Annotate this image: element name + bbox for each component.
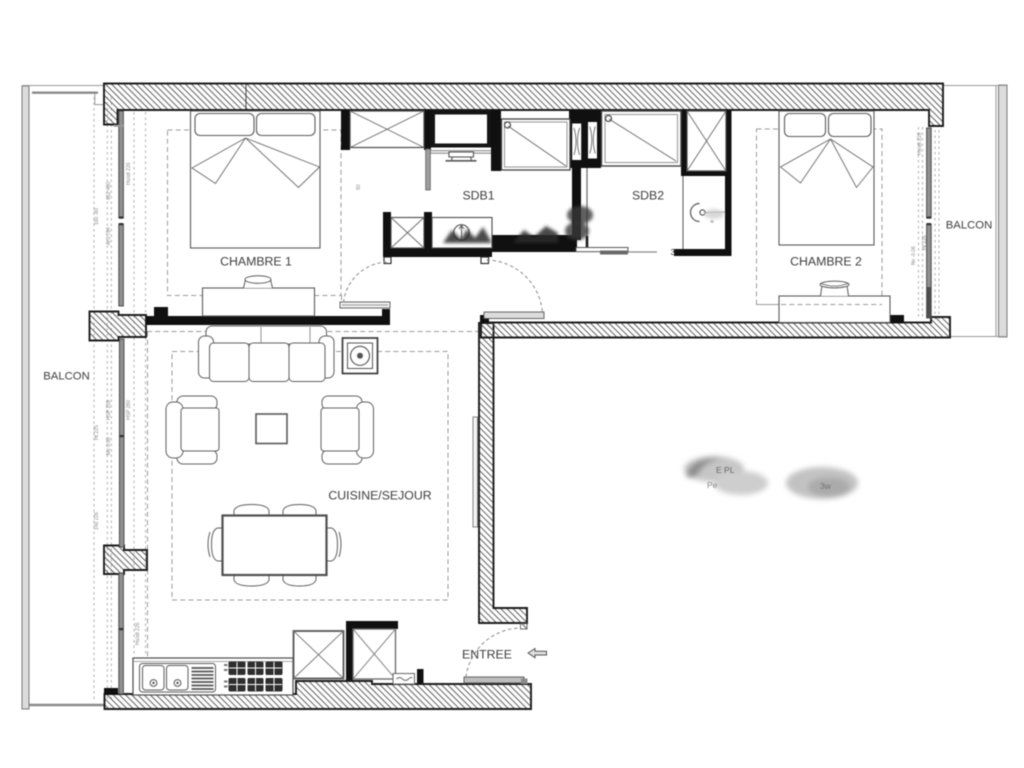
svg-text:ENTREE: ENTREE [462, 648, 512, 662]
svg-text:BALCON: BALCON [946, 220, 992, 232]
svg-text:Hs/alt 226: Hs/alt 226 [917, 132, 923, 155]
svg-text:SDB2: SDB2 [632, 189, 664, 203]
svg-text:Nv -0.06: Nv -0.06 [911, 246, 917, 265]
svg-text:A/S 784: A/S 784 [106, 227, 112, 245]
svg-text:3w: 3w [820, 481, 832, 491]
svg-text:Mc 0.80: Mc 0.80 [106, 437, 112, 455]
svg-text:Pe: Pe [707, 480, 718, 490]
svg-text:HSP 280: HSP 280 [126, 400, 132, 420]
svg-text:BALCON: BALCON [43, 371, 89, 383]
svg-text:Ht 225: Ht 225 [94, 425, 100, 440]
svg-text:HSP 259: HSP 259 [106, 400, 112, 420]
svg-text:CUISINE/SEJOUR: CUISINE/SEJOUR [328, 489, 431, 503]
svg-text:662 460: 662 460 [106, 182, 112, 200]
svg-text:Ht 226: Ht 226 [922, 235, 928, 250]
svg-text:E PL: E PL [716, 465, 735, 475]
svg-text:CHAMBRE 1: CHAMBRE 1 [220, 255, 292, 269]
svg-text:Hs/alt 226: Hs/alt 226 [135, 622, 141, 645]
svg-text:160 -80: 160 -80 [94, 208, 100, 225]
svg-text:SDB1: SDB1 [462, 189, 494, 203]
svg-text:CHAMBRE 2: CHAMBRE 2 [790, 255, 862, 269]
svg-text:146 226: 146 226 [94, 512, 100, 530]
svg-text:3: 3 [671, 247, 676, 257]
svg-text:Hs/alt 226: Hs/alt 226 [126, 162, 132, 185]
svg-text:90: 90 [356, 184, 362, 190]
